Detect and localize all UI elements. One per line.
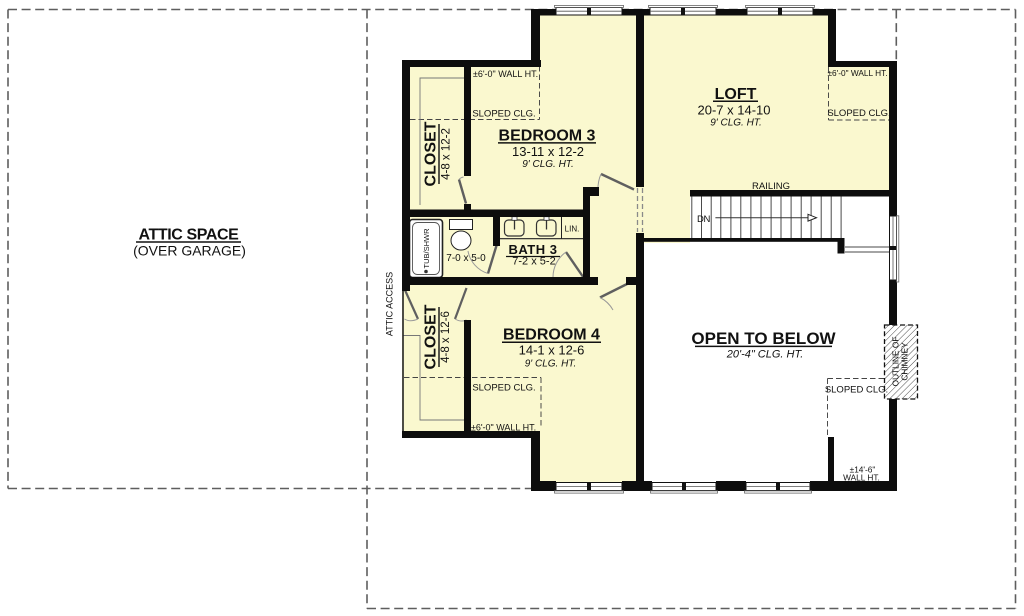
svg-text:13-11 x 12-2: 13-11 x 12-2 [512, 144, 584, 159]
svg-text:CLOSET: CLOSET [423, 121, 440, 186]
svg-text:SLOPED CLG.: SLOPED CLG. [472, 383, 535, 394]
svg-text:SLOPED CLG.: SLOPED CLG. [825, 385, 888, 396]
svg-text:9' CLG. HT.: 9' CLG. HT. [710, 118, 762, 129]
svg-text:±6'-0" WALL HT.: ±6'-0" WALL HT. [471, 423, 536, 433]
svg-text:4-8 x 12-2: 4-8 x 12-2 [441, 128, 453, 180]
svg-text:WALL HT.: WALL HT. [843, 473, 880, 483]
svg-text:BEDROOM 4: BEDROOM 4 [503, 327, 600, 344]
svg-text:CLOSET: CLOSET [423, 304, 440, 369]
svg-text:9' CLG. HT.: 9' CLG. HT. [525, 359, 577, 370]
svg-text:BEDROOM 3: BEDROOM 3 [499, 128, 596, 145]
svg-text:SLOPED CLG.: SLOPED CLG. [827, 108, 890, 119]
svg-text:OPEN TO BELOW: OPEN TO BELOW [691, 329, 836, 348]
svg-text:(OVER GARAGE): (OVER GARAGE) [133, 243, 246, 259]
svg-text:±6'-0" WALL HT.: ±6'-0" WALL HT. [827, 68, 887, 78]
svg-text:20-7 x 14-10: 20-7 x 14-10 [698, 103, 771, 118]
svg-text:±6'-0" WALL HT.: ±6'-0" WALL HT. [473, 69, 538, 79]
svg-text:4-8 x 12-6: 4-8 x 12-6 [440, 311, 452, 363]
svg-text:7-0 x 5-0: 7-0 x 5-0 [446, 253, 486, 264]
svg-text:ATTIC ACCESS: ATTIC ACCESS [385, 272, 395, 336]
svg-text:20'-4" CLG. HT.: 20'-4" CLG. HT. [726, 349, 804, 361]
svg-text:SLOPED CLG.: SLOPED CLG. [472, 109, 535, 120]
svg-text:DN: DN [697, 214, 711, 225]
svg-text:9' CLG. HT.: 9' CLG. HT. [522, 159, 574, 170]
svg-text:LOFT: LOFT [715, 86, 757, 103]
svg-text:LIN.: LIN. [565, 225, 580, 234]
svg-text:TUB/SHWR: TUB/SHWR [422, 228, 431, 269]
svg-text:RAILING: RAILING [752, 181, 790, 192]
svg-text:14-1 x 12-6: 14-1 x 12-6 [519, 343, 585, 358]
svg-text:7-2 x 5-2: 7-2 x 5-2 [512, 256, 555, 268]
svg-text:ATTIC SPACE: ATTIC SPACE [139, 227, 240, 244]
svg-text:CHIMNEY: CHIMNEY [900, 342, 910, 381]
